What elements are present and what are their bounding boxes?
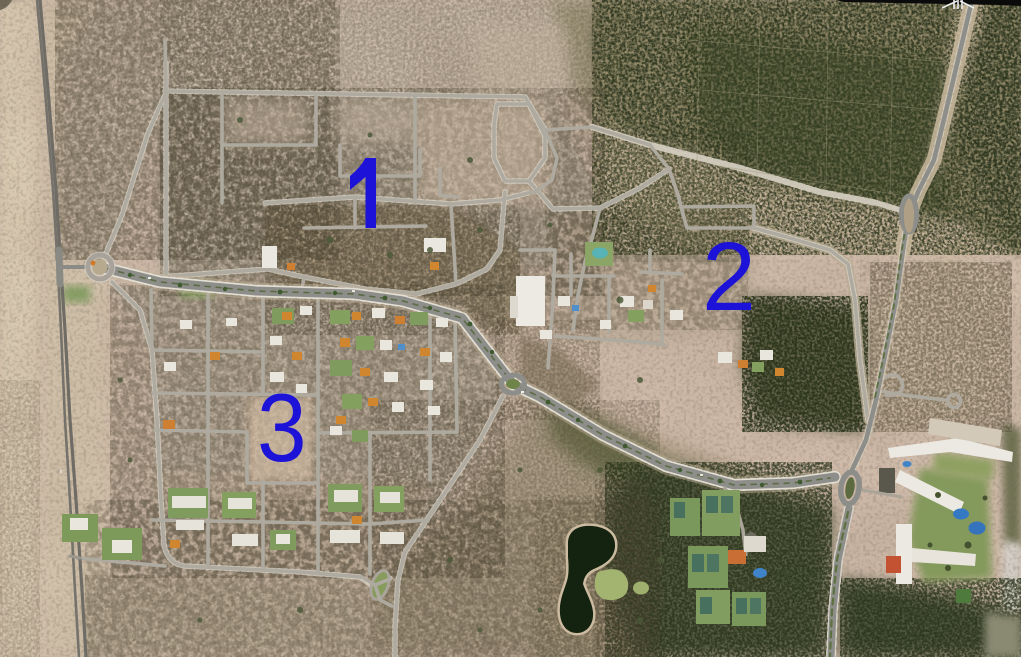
svg-text:3: 3 xyxy=(257,374,307,482)
svg-text:2: 2 xyxy=(702,222,756,331)
